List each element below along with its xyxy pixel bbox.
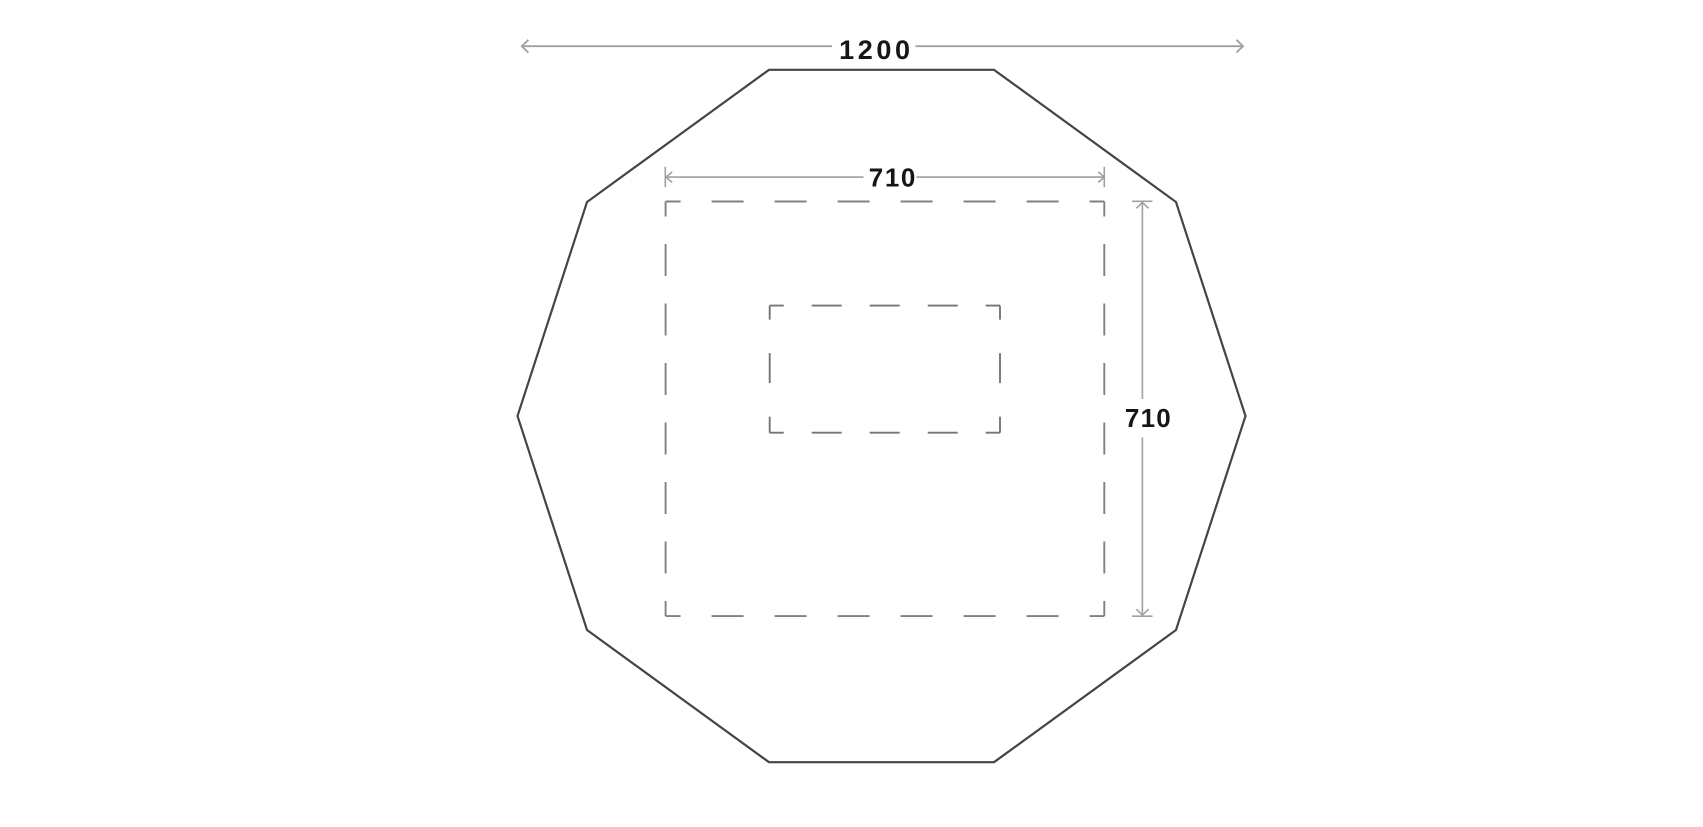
svg-text:710: 710 bbox=[1125, 403, 1172, 433]
svg-text:710: 710 bbox=[869, 163, 917, 193]
svg-text:1200: 1200 bbox=[839, 35, 913, 65]
